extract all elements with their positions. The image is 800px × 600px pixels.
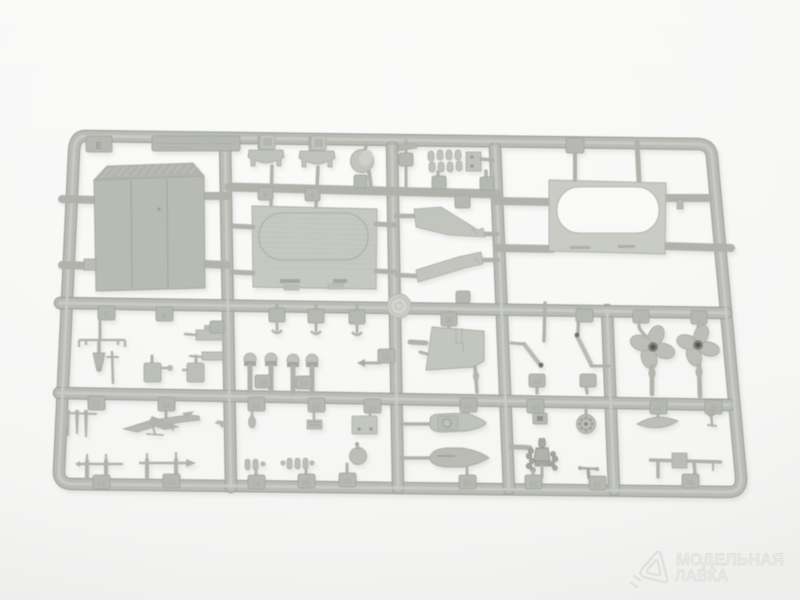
- svg-text:6: 6: [162, 311, 166, 320]
- svg-text:15: 15: [300, 379, 308, 388]
- svg-text:14: 14: [259, 378, 267, 387]
- svg-text:4: 4: [310, 191, 314, 200]
- svg-text:42: 42: [529, 479, 537, 488]
- svg-text:39: 39: [463, 479, 471, 488]
- svg-text:26: 26: [343, 477, 351, 486]
- svg-text:44: 44: [654, 404, 662, 413]
- svg-text:3: 3: [263, 190, 267, 199]
- svg-text:22: 22: [312, 403, 320, 412]
- svg-text:24: 24: [252, 479, 260, 488]
- svg-text:46: 46: [686, 478, 694, 487]
- svg-text:34: 34: [533, 377, 541, 386]
- svg-text:18: 18: [162, 401, 170, 410]
- svg-text:16: 16: [382, 353, 390, 362]
- svg-text:17: 17: [92, 400, 100, 409]
- svg-text:38: 38: [464, 402, 472, 411]
- svg-text:20: 20: [167, 478, 175, 487]
- svg-text:5: 5: [104, 310, 108, 319]
- svg-text:21: 21: [252, 402, 260, 411]
- svg-text:36: 36: [445, 316, 453, 325]
- svg-text:19: 19: [97, 479, 105, 488]
- svg-text:E: E: [96, 141, 103, 152]
- svg-text:43: 43: [593, 480, 601, 489]
- svg-text:25: 25: [302, 478, 310, 487]
- svg-text:23: 23: [368, 404, 376, 413]
- svg-text:ЛАВКА: ЛАВКА: [675, 566, 728, 585]
